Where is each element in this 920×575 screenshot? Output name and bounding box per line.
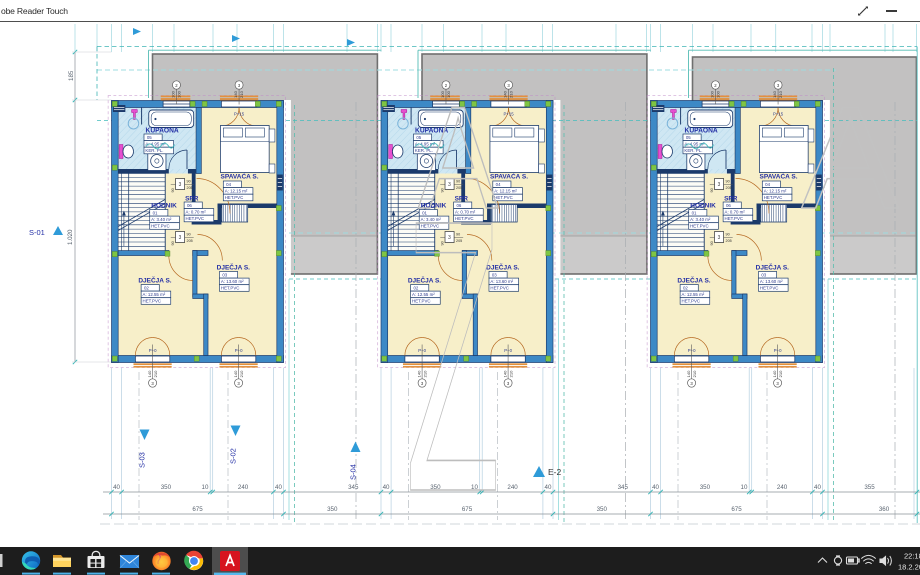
svg-text:140: 140 — [147, 370, 152, 378]
svg-text:90: 90 — [187, 232, 191, 236]
svg-text:A: 13.60 m²: A: 13.60 m² — [221, 279, 244, 284]
svg-text:40: 40 — [113, 484, 120, 491]
svg-text:205: 205 — [187, 239, 193, 243]
svg-text:01: 01 — [692, 210, 697, 215]
svg-text:HODNIK: HODNIK — [151, 202, 177, 209]
svg-text:HET.PVC: HET.PVC — [690, 224, 709, 229]
svg-text:205: 205 — [726, 186, 732, 190]
svg-text:S-04: S-04 — [349, 464, 358, 480]
svg-text:90: 90 — [171, 188, 175, 192]
svg-text:A: 12.15 m²: A: 12.15 m² — [225, 189, 248, 194]
svg-text:350: 350 — [597, 506, 608, 513]
svg-text:02: 02 — [683, 285, 688, 290]
svg-text:210: 210 — [239, 90, 244, 98]
svg-text:05: 05 — [147, 135, 152, 140]
svg-text:140: 140 — [772, 370, 777, 378]
svg-text:S-01: S-01 — [29, 228, 45, 237]
svg-text:KUPAONA: KUPAONA — [146, 127, 179, 134]
svg-text:675: 675 — [192, 506, 203, 513]
svg-text:KUPAONA: KUPAONA — [685, 127, 718, 134]
svg-text:A: 0.70 m²: A: 0.70 m² — [725, 210, 746, 215]
svg-text:SPAVAĆA S.: SPAVAĆA S. — [760, 171, 798, 180]
svg-text:A: 12.55 m²: A: 12.55 m² — [143, 292, 166, 297]
svg-text:SPR: SPR — [185, 195, 199, 202]
svg-text:01: 01 — [153, 210, 158, 215]
svg-text:355: 355 — [864, 484, 875, 491]
svg-text:205: 205 — [187, 186, 193, 190]
svg-text:KER. PL.: KER. PL. — [684, 148, 702, 153]
svg-text:240: 240 — [507, 484, 518, 491]
svg-text:1.020: 1.020 — [67, 229, 74, 245]
svg-text:HET.PVC: HET.PVC — [725, 216, 744, 221]
svg-text:90: 90 — [710, 241, 714, 245]
svg-text:210: 210 — [778, 90, 783, 98]
svg-text:A: 3.40 m²: A: 3.40 m² — [151, 217, 172, 222]
svg-text:A: 12.15 m²: A: 12.15 m² — [764, 189, 787, 194]
svg-text:SPAVAĆA S.: SPAVAĆA S. — [221, 171, 259, 180]
svg-text:3: 3 — [718, 235, 721, 241]
svg-text:210: 210 — [239, 370, 244, 378]
svg-text:HET.PVC: HET.PVC — [151, 224, 170, 229]
svg-text:140: 140 — [503, 370, 508, 378]
svg-text:240: 240 — [777, 484, 788, 491]
svg-text:DJEČJA S.: DJEČJA S. — [217, 262, 250, 271]
svg-text:KER. PL.: KER. PL. — [145, 148, 163, 153]
svg-text:S-03: S-03 — [138, 452, 147, 468]
svg-text:3: 3 — [718, 182, 721, 188]
svg-text:HET.PVC: HET.PVC — [760, 286, 779, 291]
svg-text:100: 100 — [171, 90, 176, 98]
svg-text:10: 10 — [741, 484, 748, 491]
svg-text:210: 210 — [508, 370, 513, 378]
svg-text:210: 210 — [508, 90, 513, 98]
svg-text:675: 675 — [731, 506, 742, 513]
svg-text:A: 0.70 m²: A: 0.70 m² — [186, 210, 207, 215]
svg-text:90: 90 — [710, 188, 714, 192]
svg-text:DJEČJA S.: DJEČJA S. — [677, 275, 710, 284]
svg-text:04: 04 — [765, 182, 770, 187]
svg-text:90: 90 — [726, 232, 730, 236]
svg-text:140: 140 — [233, 90, 238, 98]
svg-text:05: 05 — [686, 135, 691, 140]
svg-text:345: 345 — [348, 484, 359, 491]
svg-text:3: 3 — [179, 235, 182, 241]
svg-text:HET.PVC: HET.PVC — [186, 216, 205, 221]
svg-text:HODNIK: HODNIK — [690, 202, 716, 209]
svg-text:A: 12.55 m²: A: 12.55 m² — [682, 292, 705, 297]
svg-text:90: 90 — [171, 241, 175, 245]
svg-text:18.2.2023.: 18.2.2023. — [898, 563, 920, 572]
svg-text:40: 40 — [275, 484, 282, 491]
svg-text:240: 240 — [238, 484, 249, 491]
svg-text:A: 3.40 m²: A: 3.40 m² — [690, 217, 711, 222]
svg-text:90: 90 — [187, 179, 191, 183]
svg-text:100: 100 — [176, 90, 181, 98]
svg-text:SPR: SPR — [724, 195, 738, 202]
svg-text:Z: Z — [406, 139, 501, 547]
svg-text:90: 90 — [726, 179, 730, 183]
svg-text:A: 13.60 m²: A: 13.60 m² — [760, 279, 783, 284]
svg-text:HET.PVC: HET.PVC — [143, 299, 162, 304]
svg-text:DJEČJA S.: DJEČJA S. — [138, 275, 171, 284]
svg-text:HET.PVC: HET.PVC — [221, 286, 240, 291]
svg-text:345: 345 — [618, 484, 629, 491]
svg-text:40: 40 — [814, 484, 821, 491]
svg-text:140: 140 — [233, 370, 238, 378]
svg-text:22:18: 22:18 — [904, 552, 920, 561]
svg-text:03: 03 — [222, 272, 227, 277]
svg-text:HET.PVC: HET.PVC — [764, 195, 783, 200]
svg-text:HET.PVC: HET.PVC — [225, 195, 244, 200]
svg-text:185: 185 — [68, 70, 75, 81]
svg-text:140: 140 — [686, 370, 691, 378]
svg-text:HET.PVC: HET.PVC — [682, 299, 701, 304]
svg-text:E-2: E-2 — [548, 467, 562, 477]
svg-text:210: 210 — [153, 370, 158, 378]
svg-text:10: 10 — [202, 484, 209, 491]
svg-text:DJEČJA S.: DJEČJA S. — [756, 262, 789, 271]
svg-text:S-02: S-02 — [229, 448, 238, 464]
svg-text:40: 40 — [383, 484, 390, 491]
svg-text:04: 04 — [226, 182, 231, 187]
svg-text:03: 03 — [761, 272, 766, 277]
svg-text:210: 210 — [778, 370, 783, 378]
svg-text:100: 100 — [715, 90, 720, 98]
svg-text:P+15: P+15 — [503, 111, 514, 116]
svg-text:06: 06 — [187, 203, 192, 208]
svg-text:06: 06 — [726, 203, 731, 208]
svg-text:205: 205 — [726, 239, 732, 243]
svg-text:A: A — [801, 76, 899, 239]
svg-text:350: 350 — [700, 484, 711, 491]
svg-text:350: 350 — [327, 506, 338, 513]
svg-text:140: 140 — [772, 90, 777, 98]
svg-text:P+15: P+15 — [773, 111, 784, 116]
svg-text:100: 100 — [710, 90, 715, 98]
svg-text:360: 360 — [879, 506, 890, 513]
svg-text:40: 40 — [545, 484, 552, 491]
svg-text:210: 210 — [692, 370, 697, 378]
svg-text:P+15: P+15 — [234, 111, 245, 116]
svg-text:02: 02 — [144, 285, 149, 290]
svg-text:140: 140 — [503, 90, 508, 98]
svg-text:40: 40 — [652, 484, 659, 491]
svg-text:3: 3 — [179, 182, 182, 188]
svg-text:350: 350 — [161, 484, 172, 491]
